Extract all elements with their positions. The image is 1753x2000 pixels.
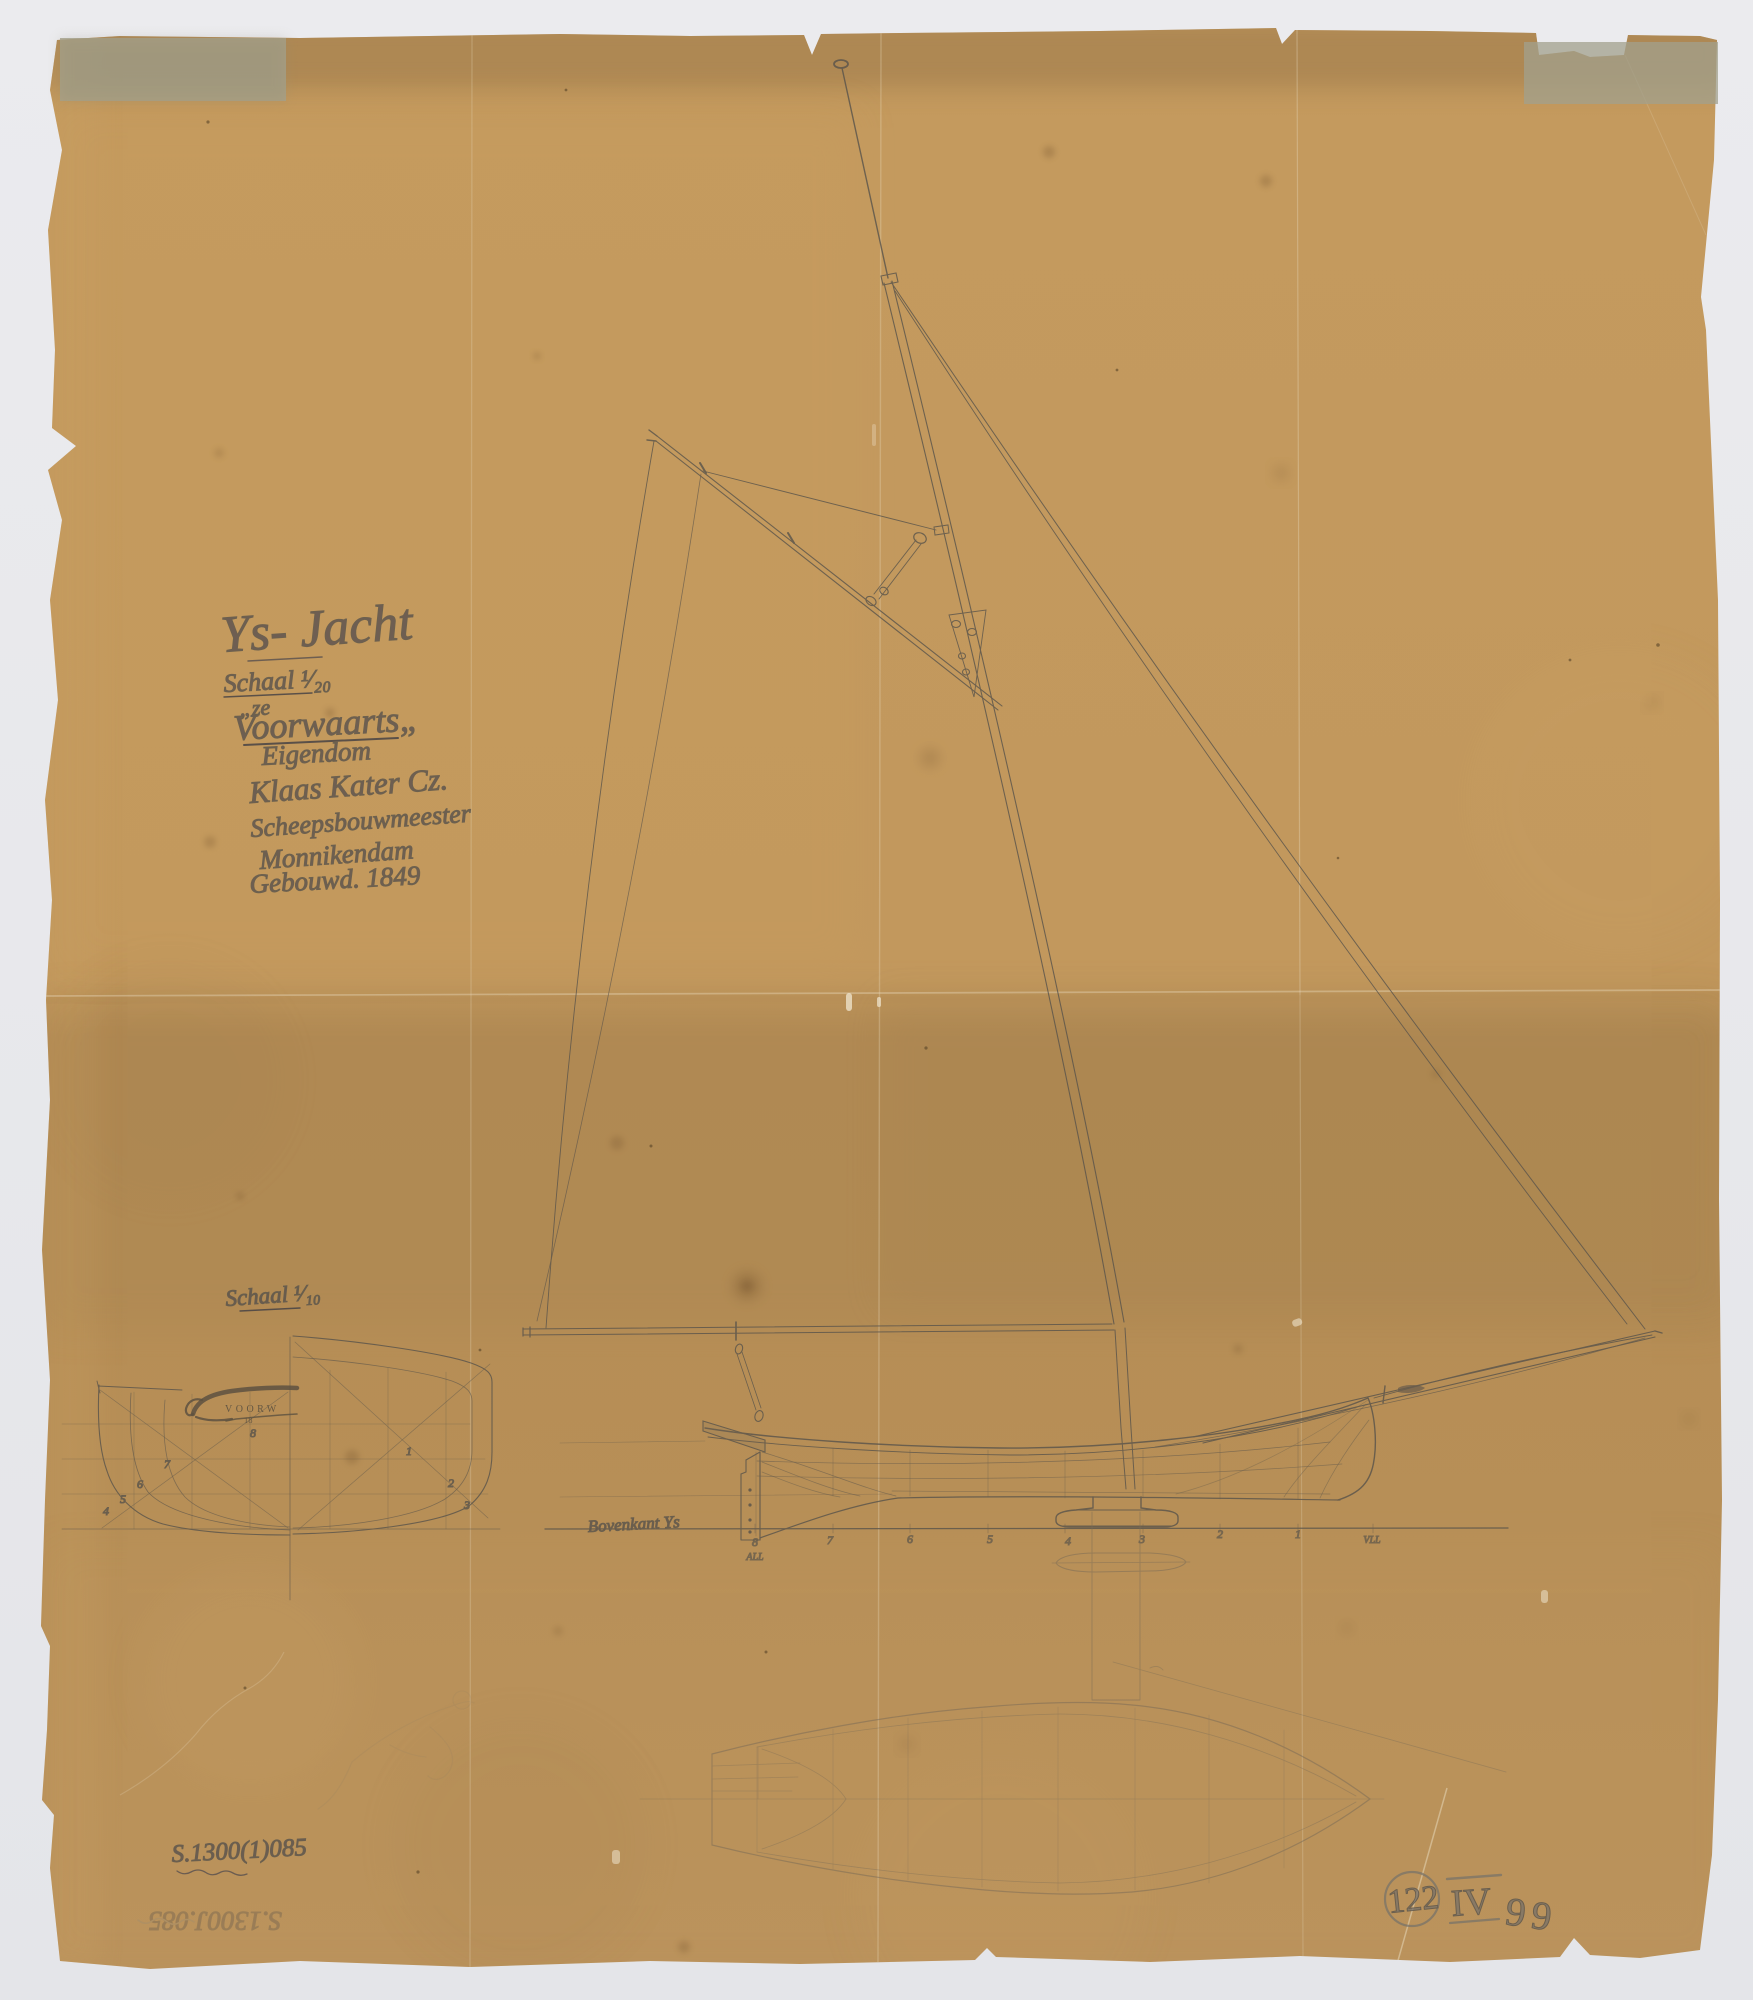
svg-text:4: 4 [103, 1504, 109, 1518]
svg-text:Schaal ¹⁄₂₀: Schaal ¹⁄₂₀ [223, 663, 332, 698]
svg-text:ALL: ALL [745, 1552, 764, 1563]
svg-text:5: 5 [987, 1532, 993, 1546]
svg-text:3: 3 [463, 1498, 470, 1512]
svg-text:2: 2 [448, 1476, 454, 1490]
svg-text:IV: IV [1450, 1880, 1493, 1925]
svg-text:8: 8 [250, 1426, 256, 1440]
svg-text:2: 2 [1217, 1527, 1223, 1541]
svg-text:VOORW: VOORW [225, 1404, 280, 1415]
svg-text:Eigendom: Eigendom [260, 735, 372, 771]
svg-text:5: 5 [120, 1492, 126, 1506]
svg-text:8: 8 [752, 1535, 758, 1549]
svg-text:S.1300J.085: S.1300J.085 [149, 1906, 282, 1936]
svg-text:18: 18 [244, 1415, 253, 1425]
svg-text:6: 6 [137, 1477, 143, 1491]
svg-text:7: 7 [827, 1533, 834, 1547]
svg-text:99: 99 [1503, 1888, 1561, 1940]
svg-text:122: 122 [1386, 1879, 1441, 1921]
svg-text:4: 4 [1065, 1534, 1071, 1548]
svg-text:7: 7 [164, 1457, 171, 1471]
svg-text:1: 1 [1295, 1527, 1301, 1541]
svg-text:6: 6 [907, 1532, 913, 1546]
svg-text:1: 1 [406, 1444, 412, 1458]
svg-text:VLL: VLL [1363, 1535, 1381, 1546]
svg-text:3: 3 [1138, 1532, 1145, 1546]
